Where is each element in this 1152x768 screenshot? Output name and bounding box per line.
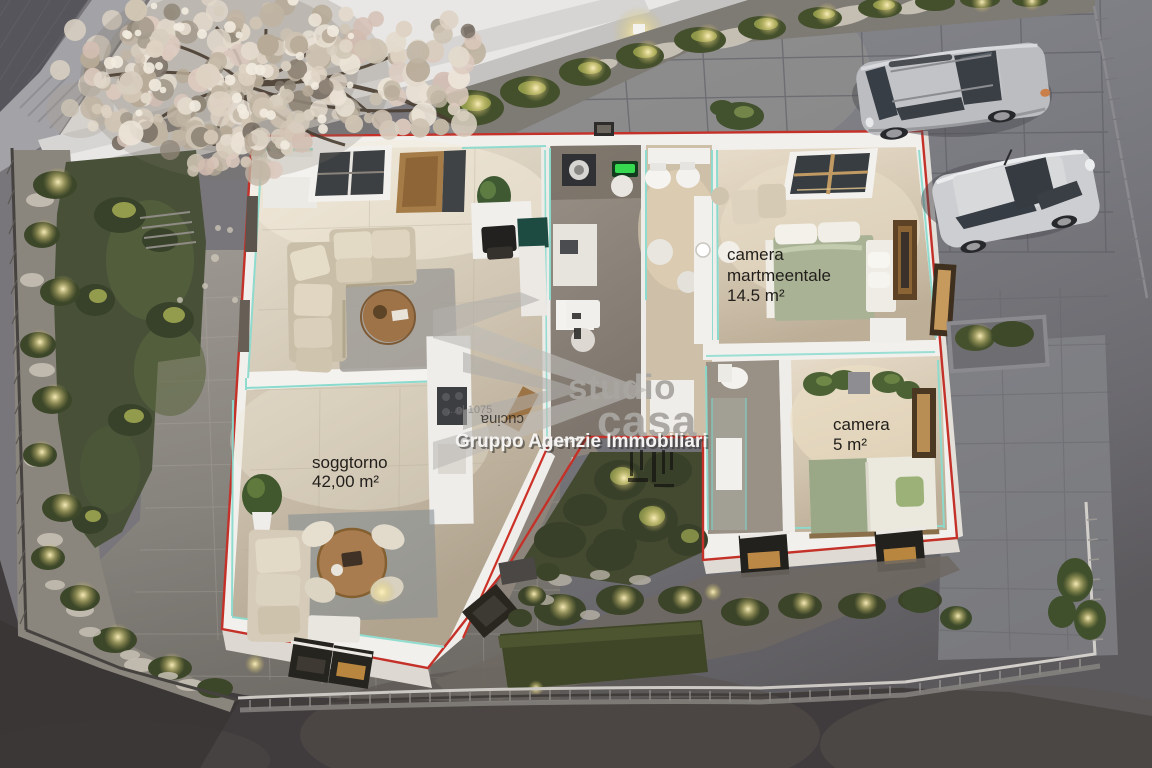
svg-text:martmeentale: martmeentale [727, 266, 831, 285]
svg-text:soggtorno: soggtorno [312, 453, 388, 472]
svg-text:camera: camera [833, 415, 890, 434]
svg-text:14.5 m²: 14.5 m² [727, 286, 785, 305]
svg-text:...ol 1075: ...ol 1075 [447, 404, 492, 416]
svg-text:Gruppo Agenzie Immobiliari: Gruppo Agenzie Immobiliari [455, 431, 708, 452]
svg-text:42,00 m²: 42,00 m² [312, 472, 379, 491]
svg-text:5 m²: 5 m² [833, 435, 867, 454]
svg-text:camera: camera [727, 245, 784, 264]
